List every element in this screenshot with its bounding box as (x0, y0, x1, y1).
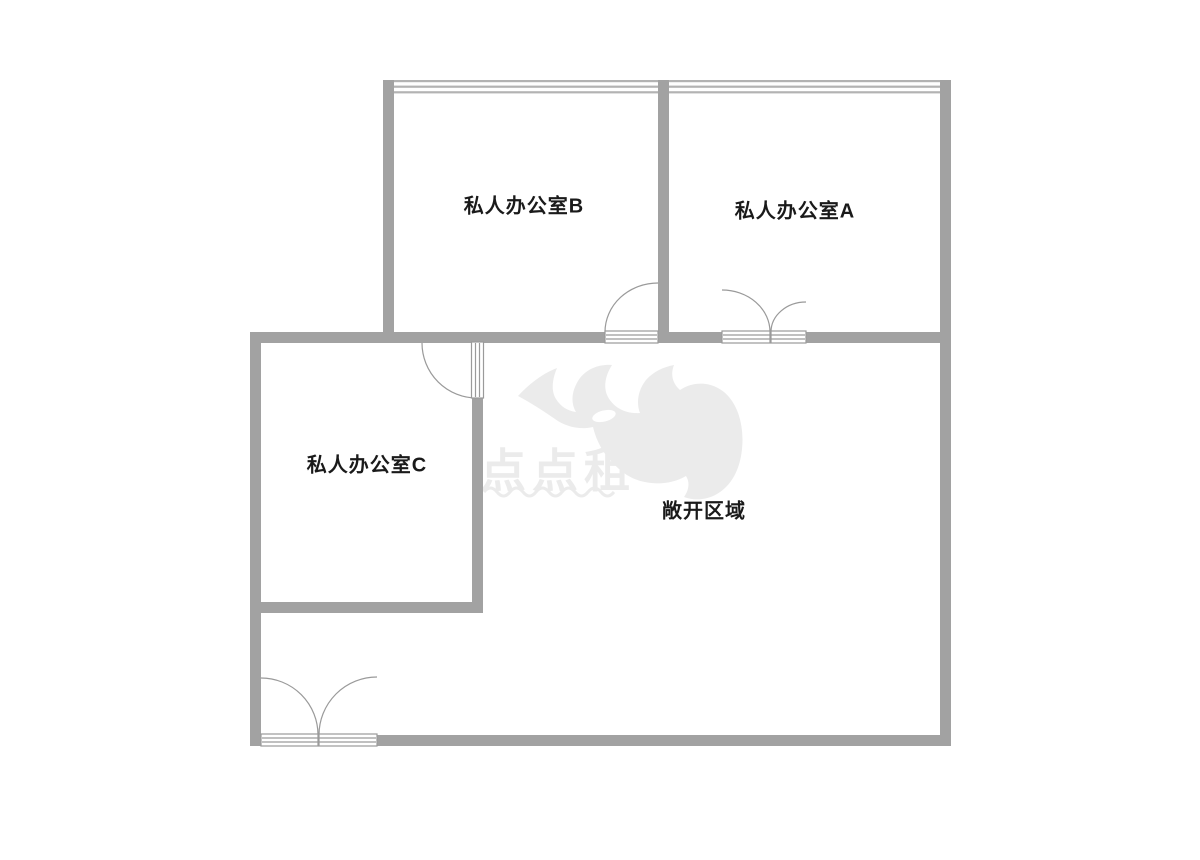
wall-office-b-a-divider (658, 80, 669, 343)
room-label-private-office-b: 私人办公室B (464, 190, 584, 219)
door-office-a-arc-left (722, 290, 770, 332)
door-office-a-leaf-right (771, 331, 806, 343)
door-office-b-leaf (605, 331, 658, 343)
watermark: 点点租 (480, 365, 742, 500)
door-office-b-arc (605, 283, 658, 332)
door-office-b (605, 283, 658, 343)
door-entrance-leaf-left (261, 734, 318, 746)
wall-west-outer (250, 332, 261, 746)
door-office-a-arc-right (771, 302, 806, 332)
floor-plan: 点点租 (0, 0, 1200, 860)
wall-office-c-east (472, 398, 483, 613)
door-office-a-leaf-left (722, 331, 770, 343)
wall-mid-horizontal-center (658, 332, 722, 343)
door-office-c-arc (422, 343, 477, 398)
room-label-private-office-a: 私人办公室A (735, 195, 855, 224)
wall-south-outer-stub (250, 735, 261, 746)
door-entrance-arc-left (261, 678, 318, 735)
wall-mid-horizontal-west (250, 332, 605, 343)
wall-south-outer (377, 735, 951, 746)
door-entrance (261, 677, 377, 746)
room-label-open-area: 敞开区域 (662, 495, 746, 524)
wall-mid-horizontal-east (806, 332, 951, 343)
door-entrance-leaf-right (319, 734, 377, 746)
door-office-a (722, 290, 806, 343)
watermark-text: 点点租 (480, 445, 636, 497)
door-office-c-leaf (472, 342, 484, 398)
floor-plan-drawing: 点点租 (0, 0, 1200, 860)
room-label-private-office-c: 私人办公室C (307, 449, 427, 478)
wall-office-b-west (383, 80, 394, 343)
wall-office-c-south (250, 602, 483, 613)
door-entrance-arc-right (319, 677, 377, 735)
door-office-c (422, 342, 484, 398)
wall-east-outer (940, 80, 951, 746)
